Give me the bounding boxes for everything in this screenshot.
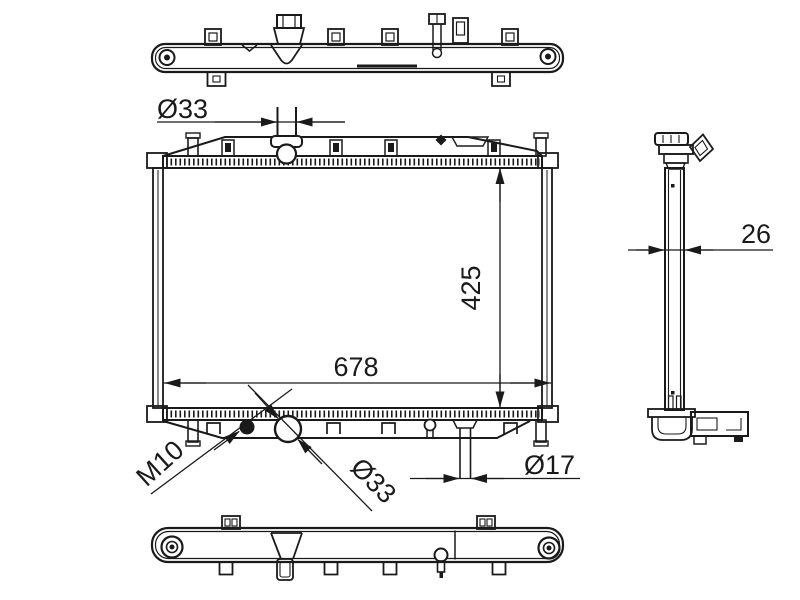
front-view [147,107,558,478]
core-thickness-label: 26 [741,219,771,249]
side-view [648,133,748,444]
mounting-hole [162,537,183,558]
side-core [665,168,684,410]
clip-bracket [453,18,468,43]
lower-tab [208,72,511,86]
outlet-diameter-label: Ø33 [345,452,402,509]
top-tank-outline [163,135,542,157]
core-thickness-dimension-group: 26 [628,219,773,250]
pipe-diameter-label: Ø17 [524,450,575,480]
pipe-diameter-dimension-group: Ø17 [410,450,580,480]
top-header-band [163,156,542,168]
side-bottom-bracket [648,409,748,444]
right-side-rail [538,153,558,422]
core-width-label: 678 [333,352,378,382]
overflow-pipe [453,420,477,478]
bottom-tank-view [152,516,563,580]
drain-cock [425,420,436,439]
core-width-dimension-group: 678 [164,352,551,383]
mounting-hole [541,49,556,64]
bottom-header-band [163,408,542,420]
mounting-hole [160,50,175,65]
drain-plug [435,549,448,579]
left-side-rail [147,153,167,422]
core-height-dimension-group: 425 [456,168,500,407]
core-height-label: 425 [456,265,486,310]
corner-pins [186,133,548,446]
mounting-tab [205,29,518,45]
side-top-cap [655,133,713,169]
drawing-svg: Ø33 425 678 M10 Ø33 [0,0,800,600]
outlet-port [275,416,301,442]
radiator-technical-drawing: Ø33 425 678 M10 Ø33 [0,0,800,600]
mounting-hole [539,538,560,559]
lower-tab [220,562,506,575]
top-tank-view [152,14,563,86]
overflow-pin [429,14,445,58]
inlet-diameter-dimension-group: Ø33 [157,94,345,124]
drain-thread-label: M10 [130,435,189,492]
inlet-diameter-label: Ø33 [157,94,208,124]
outlet-funnel [271,533,302,580]
filler-neck [271,15,304,64]
